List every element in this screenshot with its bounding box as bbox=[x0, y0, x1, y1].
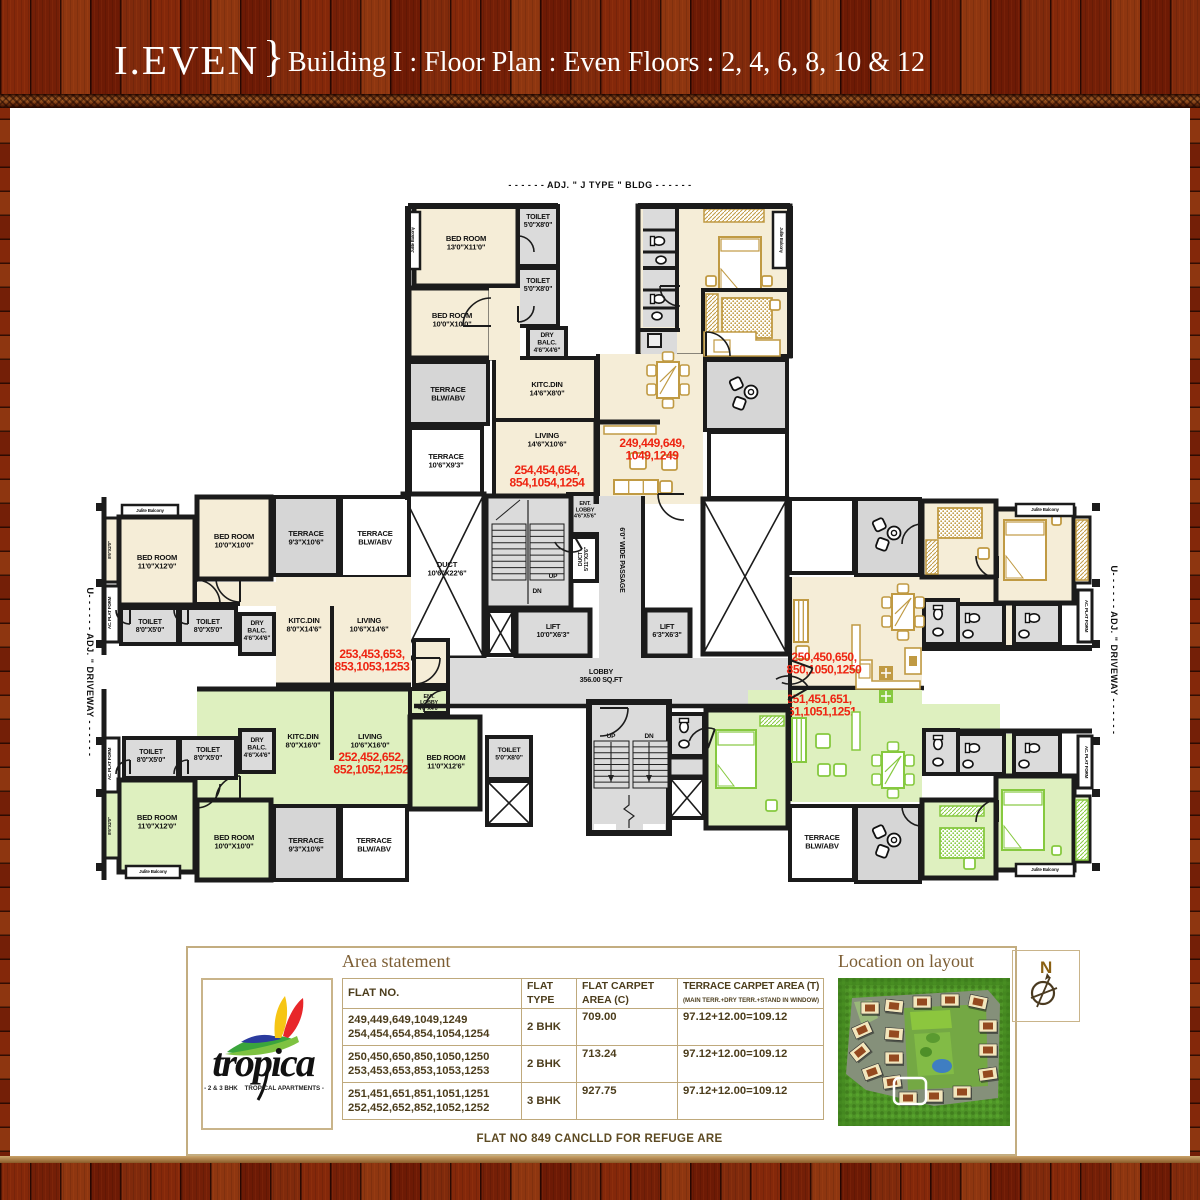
svg-text:KITC.DIN8'0"X14'6": KITC.DIN8'0"X14'6" bbox=[287, 616, 323, 634]
svg-text:U- - - - - - ADJ. " DRIVEWAY: U- - - - - - ADJ. " DRIVEWAY - - - - - - bbox=[1109, 566, 1119, 735]
svg-text:BED ROOM11'0"X12'6": BED ROOM11'0"X12'6" bbox=[426, 753, 465, 770]
svg-text:249,449,649,1049,1249: 249,449,649,1049,1249 bbox=[619, 436, 684, 463]
svg-text:TOILET8'0"X5'0": TOILET8'0"X5'0" bbox=[136, 619, 164, 634]
svg-text:BED ROOM11'0"X12'0": BED ROOM11'0"X12'0" bbox=[137, 813, 177, 831]
svg-text:253,453,653,853,1053,1253: 253,453,653,853,1053,1253 bbox=[335, 647, 411, 674]
svg-text:TERRACEBLW/ABV: TERRACEBLW/ABV bbox=[430, 385, 466, 403]
svg-text:TERRACEBLW/ABV: TERRACEBLW/ABV bbox=[357, 529, 393, 547]
svg-text:252,452,652,852,1052,1252: 252,452,652,852,1052,1252 bbox=[334, 750, 410, 777]
svg-text:Julite Balcony: Julite Balcony bbox=[136, 508, 164, 513]
svg-text:TERRACE10'6"X9'3": TERRACE10'6"X9'3" bbox=[428, 452, 464, 470]
svg-text:KITC.DIN14'6"X8'0": KITC.DIN14'6"X8'0" bbox=[530, 380, 566, 398]
svg-text:TERRACEBLW/ABV: TERRACEBLW/ABV bbox=[804, 833, 840, 851]
svg-text:Julite Balcony: Julite Balcony bbox=[139, 869, 167, 874]
svg-text:254,454,654,854,1054,1254: 254,454,654,854,1054,1254 bbox=[510, 463, 586, 490]
svg-text:TOILET5'0"X8'0": TOILET5'0"X8'0" bbox=[524, 214, 552, 229]
svg-text:U- - - - - - ADJ. " DRIVEWAY: U- - - - - - ADJ. " DRIVEWAY - - - - - - bbox=[85, 588, 95, 757]
svg-text:TOILET8'0"X5'0": TOILET8'0"X5'0" bbox=[137, 749, 165, 764]
svg-text:8'6"X2'0": 8'6"X2'0" bbox=[107, 817, 112, 835]
svg-text:251,451,651,851,1051,1251: 251,451,651,851,1051,1251 bbox=[782, 692, 858, 719]
svg-text:Julite Balcony: Julite Balcony bbox=[1031, 507, 1059, 512]
svg-text:AC. PLAT FORM: AC. PLAT FORM bbox=[1084, 600, 1089, 633]
svg-text:- 2 & 3 BHK TROPICAL APARTM: - 2 & 3 BHK TROPICAL APARTMENTS - bbox=[204, 1085, 324, 1092]
svg-text:TERRACE9'3"X10'6": TERRACE9'3"X10'6" bbox=[288, 529, 324, 547]
svg-text:BED ROOM10'0"X10'0": BED ROOM10'0"X10'0" bbox=[214, 532, 254, 550]
svg-text:KITC.DIN8'0"X16'0": KITC.DIN8'0"X16'0" bbox=[286, 732, 322, 750]
svg-text:BED ROOM10'0"X10'0": BED ROOM10'0"X10'0" bbox=[214, 833, 254, 851]
svg-text:BED ROOM13'0"X11'0": BED ROOM13'0"X11'0" bbox=[446, 234, 486, 252]
svg-text:AC. PLAT FORM: AC. PLAT FORM bbox=[1084, 746, 1089, 779]
svg-text:6'0" WIDE PASSAGE: 6'0" WIDE PASSAGE bbox=[618, 527, 625, 593]
svg-text:AC. PLAT FORM: AC. PLAT FORM bbox=[107, 596, 112, 629]
svg-text:TOILET8'0"X5'0": TOILET8'0"X5'0" bbox=[194, 619, 222, 634]
svg-text:tropica: tropica bbox=[212, 1040, 316, 1085]
svg-text:- - - - - - ADJ. " J TYPE " B: - - - - - - ADJ. " J TYPE " BLDG - - - -… bbox=[508, 180, 691, 190]
svg-text:TERRACEBLW/ABV: TERRACEBLW/ABV bbox=[356, 836, 392, 854]
svg-text:UP: UP bbox=[549, 573, 558, 580]
svg-text:Julite Balcony: Julite Balcony bbox=[1031, 867, 1059, 872]
svg-text:TOILET5'0"X8'0": TOILET5'0"X8'0" bbox=[524, 278, 552, 293]
svg-text:TOILET5'0"X8'0": TOILET5'0"X8'0" bbox=[495, 747, 523, 762]
svg-text:DN: DN bbox=[533, 588, 542, 595]
svg-text:8'6"X2'0": 8'6"X2'0" bbox=[107, 541, 112, 559]
svg-text:DN: DN bbox=[645, 733, 654, 740]
svg-text:Julite Balcony: Julite Balcony bbox=[779, 227, 784, 253]
svg-text:TOILET8'0"X5'0": TOILET8'0"X5'0" bbox=[194, 747, 222, 762]
svg-text:TERRACE9'3"X10'6": TERRACE9'3"X10'6" bbox=[288, 836, 324, 854]
svg-text:N: N bbox=[1040, 958, 1052, 977]
svg-text:AC. PLAT FORM: AC. PLAT FORM bbox=[107, 747, 112, 780]
svg-text:BED ROOM11'0"X12'0": BED ROOM11'0"X12'0" bbox=[137, 553, 177, 571]
